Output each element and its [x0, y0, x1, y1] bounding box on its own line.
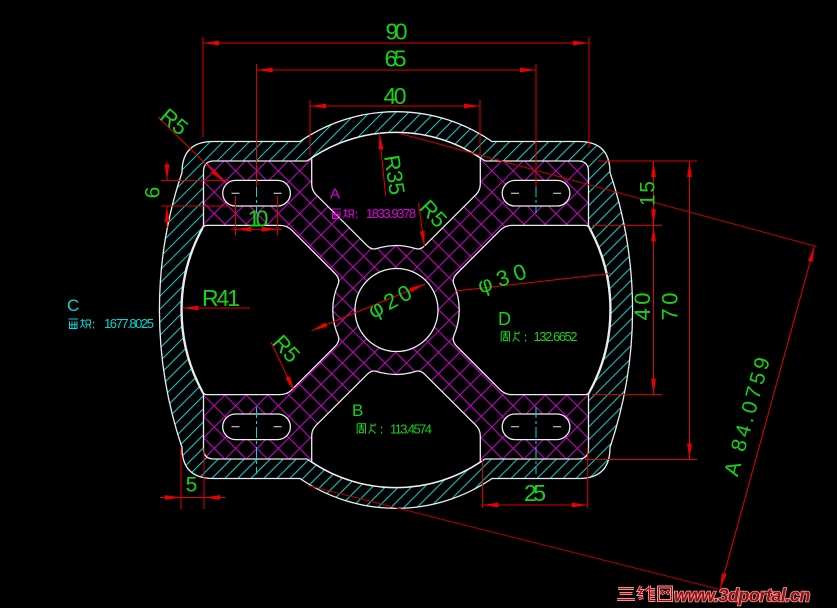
svg-text:0: 0 — [256, 206, 269, 232]
svg-text:www.3dportal.cn: www.3dportal.cn — [674, 586, 810, 606]
svg-text:D: D — [498, 309, 511, 329]
svg-text:90: 90 — [386, 19, 408, 45]
svg-text:113.4574: 113.4574 — [390, 422, 432, 437]
svg-text:132.6652: 132.6652 — [534, 329, 578, 344]
svg-text:15: 15 — [637, 181, 660, 206]
svg-text:25: 25 — [524, 480, 546, 506]
svg-text:R5: R5 — [155, 103, 193, 140]
svg-text:B: B — [352, 401, 363, 420]
svg-text:A: A — [330, 186, 340, 203]
svg-text:65: 65 — [385, 46, 407, 72]
svg-text:A 84.0759: A 84.0759 — [720, 355, 775, 479]
svg-text:1833.9378: 1833.9378 — [366, 206, 416, 221]
svg-text:C: C — [67, 296, 79, 315]
svg-text:1677.8025: 1677.8025 — [104, 316, 154, 331]
svg-text:40: 40 — [384, 83, 407, 109]
svg-text:5: 5 — [186, 474, 198, 497]
svg-text:40: 40 — [630, 293, 655, 321]
svg-text:70: 70 — [658, 293, 683, 321]
svg-text:6: 6 — [142, 187, 165, 199]
svg-text:R41: R41 — [202, 285, 240, 311]
